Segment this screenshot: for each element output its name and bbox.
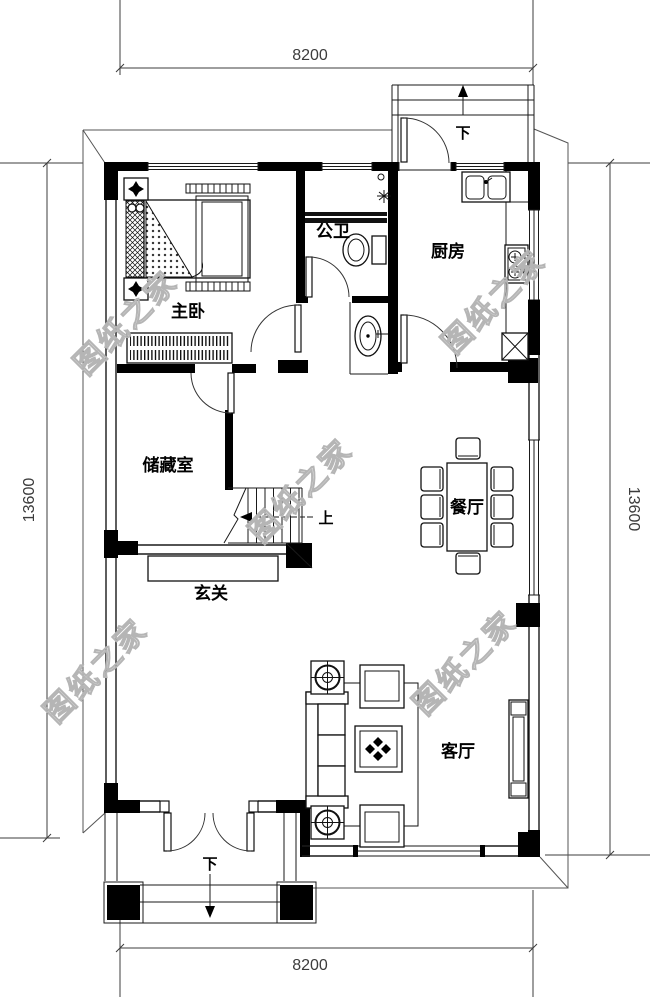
- corner-cabinet: [502, 333, 528, 360]
- watermark-5: 图纸之家: [406, 604, 523, 721]
- dimension-right-value: 13600: [625, 487, 642, 532]
- wash-basin: [350, 302, 388, 374]
- kitchen-sink: [462, 172, 510, 202]
- room-label-dining: 餐厅: [450, 497, 484, 517]
- room-label-master-bedroom: 主卧: [171, 301, 205, 321]
- dimension-bottom-value: 8200: [292, 957, 328, 974]
- dimension-left-value: 13600: [21, 478, 38, 523]
- dimension-top-value: 8200: [292, 47, 328, 64]
- wardrobe: [127, 333, 232, 363]
- window-kitchen-north: [456, 162, 504, 171]
- storage-door: [191, 373, 234, 413]
- back-door-opening: [399, 162, 451, 171]
- tv-cabinet: [509, 700, 528, 798]
- shoe-cabinet: [148, 556, 278, 581]
- room-label-bathroom: 公卫: [316, 222, 350, 241]
- plant-bottom-icon: [311, 806, 344, 839]
- porch-column-right: [280, 885, 313, 920]
- back-step-arrow: [458, 85, 468, 97]
- nightstand-top: [124, 178, 148, 200]
- armchair-bottom: [360, 805, 404, 847]
- bedroom-door: [251, 305, 301, 352]
- dimension-right: 13600: [545, 159, 650, 859]
- room-label-foyer: 玄关: [194, 583, 228, 603]
- room-label-kitchen: 厨房: [431, 241, 465, 261]
- sofa: [306, 692, 348, 808]
- bed-valance-top: [186, 184, 250, 193]
- stair-up-label: 上: [318, 510, 333, 527]
- column-stair: [286, 543, 312, 568]
- bathroom-door: [306, 257, 349, 297]
- bed-valance-bottom: [186, 282, 250, 291]
- column-east: [516, 603, 540, 627]
- window-bedroom-north: [148, 162, 258, 171]
- room-label-living: 客厅: [440, 741, 475, 761]
- room-label-storage: 储藏室: [143, 455, 194, 475]
- armchair-top: [360, 665, 404, 708]
- watermark-4: 图纸之家: [37, 612, 154, 729]
- coffee-table: [355, 726, 402, 772]
- porch-column-left: [107, 885, 140, 920]
- back-porch: 下: [392, 85, 534, 162]
- dimension-left: 13600: [0, 159, 83, 842]
- window-bathroom-north: [322, 162, 372, 171]
- back-door: [401, 118, 449, 163]
- front-porch: 下: [104, 813, 316, 923]
- dimension-bottom: 8200: [116, 890, 537, 997]
- plant-top-icon: [311, 661, 344, 694]
- floor-plan-drawing: 8200 8200 13600 13600: [0, 0, 650, 997]
- dimension-top: 8200: [116, 0, 537, 85]
- front-step-label: 下: [202, 856, 217, 873]
- front-step-arrow: [205, 906, 215, 918]
- back-step-label: 下: [455, 125, 470, 142]
- front-door: [104, 800, 310, 851]
- floor-plan-page: 8200 8200 13600 13600: [0, 0, 650, 997]
- watermark-3: 图纸之家: [242, 432, 359, 549]
- window-dining-east: [528, 440, 540, 595]
